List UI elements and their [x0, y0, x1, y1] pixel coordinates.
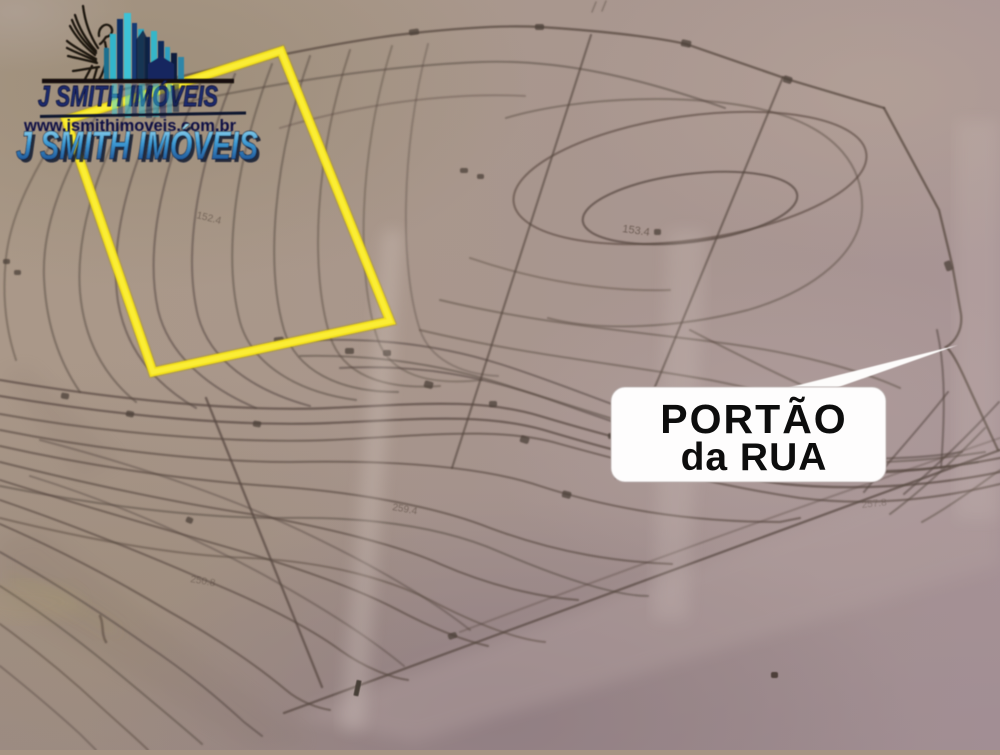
svg-text:J SMITH IMÓVEIS: J SMITH IMÓVEIS	[16, 122, 258, 168]
svg-text:da RUA: da RUA	[681, 436, 828, 479]
